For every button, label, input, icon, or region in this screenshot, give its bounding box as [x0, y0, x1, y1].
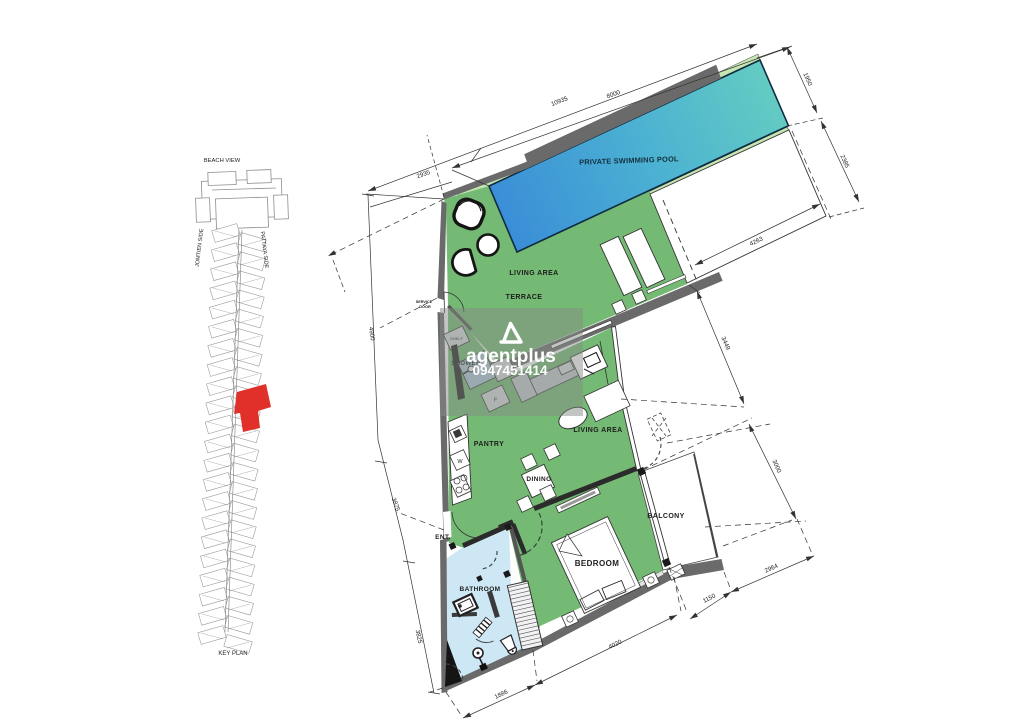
svg-text:3825: 3825	[414, 629, 424, 644]
svg-text:1950: 1950	[801, 72, 813, 88]
svg-text:W: W	[457, 459, 463, 465]
svg-text:LIVING AREA: LIVING AREA	[509, 270, 558, 277]
svg-text:DOOR: DOOR	[419, 305, 431, 309]
svg-text:LIVING AREA: LIVING AREA	[573, 427, 622, 434]
svg-text:ENT.: ENT.	[435, 534, 451, 541]
svg-text:3875: 3875	[390, 497, 401, 513]
svg-text:1886: 1886	[494, 688, 510, 701]
svg-text:2964: 2964	[764, 562, 780, 574]
svg-text:KEY PLAN: KEY PLAN	[218, 651, 247, 657]
svg-text:JOMTIEN SIDE: JOMTIEN SIDE	[195, 228, 206, 267]
svg-text:BALCONY: BALCONY	[647, 513, 684, 520]
svg-text:BEACH VIEW: BEACH VIEW	[204, 158, 241, 164]
svg-text:PANTRY: PANTRY	[474, 441, 504, 448]
svg-text:3000: 3000	[770, 459, 782, 475]
svg-text:10935: 10935	[550, 95, 569, 108]
svg-text:4020: 4020	[608, 638, 624, 651]
svg-text:SERVICE: SERVICE	[416, 300, 433, 304]
svg-text:0947451414: 0947451414	[472, 363, 548, 378]
svg-text:4900: 4900	[367, 326, 376, 341]
svg-text:BEDROOM: BEDROOM	[575, 559, 620, 568]
svg-text:TERRACE: TERRACE	[506, 294, 543, 301]
svg-text:BATHROOM: BATHROOM	[460, 586, 501, 593]
svg-text:DINING: DINING	[526, 476, 551, 483]
svg-text:2935: 2935	[416, 169, 432, 180]
svg-text:8000: 8000	[606, 89, 622, 100]
